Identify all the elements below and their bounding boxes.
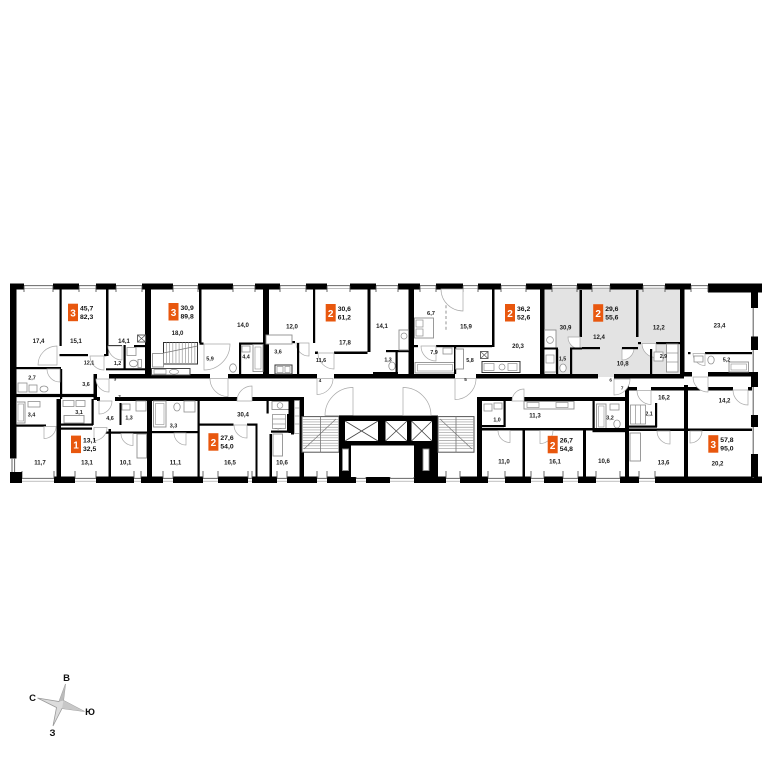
svg-text:Ю: Ю: [85, 707, 95, 718]
svg-text:45,7: 45,7: [80, 306, 93, 313]
svg-text:2: 2: [595, 309, 601, 320]
svg-text:5,8: 5,8: [466, 358, 474, 364]
svg-text:16,5: 16,5: [224, 460, 236, 467]
svg-text:23,4: 23,4: [714, 323, 726, 330]
svg-text:1,5: 1,5: [559, 357, 566, 363]
svg-text:В: В: [63, 673, 70, 684]
svg-text:52,6: 52,6: [517, 314, 530, 321]
svg-text:54,0: 54,0: [220, 444, 233, 451]
svg-text:7,9: 7,9: [430, 350, 438, 356]
svg-text:15,1: 15,1: [70, 338, 82, 345]
svg-text:30,6: 30,6: [338, 306, 351, 313]
svg-text:30,9: 30,9: [181, 305, 194, 312]
svg-text:16,1: 16,1: [549, 459, 561, 466]
svg-text:2: 2: [328, 309, 334, 320]
svg-text:С: С: [29, 693, 36, 704]
svg-text:13,6: 13,6: [658, 460, 670, 467]
svg-text:3,2: 3,2: [606, 416, 614, 422]
svg-text:18,0: 18,0: [172, 330, 184, 337]
svg-text:1,2: 1,2: [114, 361, 121, 367]
svg-text:4: 4: [319, 378, 322, 383]
svg-text:14,1: 14,1: [118, 338, 130, 345]
svg-text:54,8: 54,8: [560, 446, 573, 453]
svg-text:82,3: 82,3: [80, 314, 93, 321]
svg-text:3,3: 3,3: [170, 424, 178, 430]
svg-text:29,6: 29,6: [605, 306, 618, 313]
svg-text:3: 3: [114, 377, 117, 382]
svg-text:2: 2: [550, 441, 556, 452]
svg-text:1: 1: [73, 441, 79, 452]
svg-text:16,2: 16,2: [658, 395, 670, 402]
svg-text:3: 3: [70, 309, 76, 320]
svg-text:89,8: 89,8: [181, 313, 194, 320]
svg-text:14,2: 14,2: [719, 398, 731, 405]
svg-text:1,3: 1,3: [125, 416, 132, 422]
svg-text:1,0: 1,0: [493, 418, 500, 424]
svg-text:11,6: 11,6: [316, 358, 326, 364]
svg-text:11,1: 11,1: [170, 460, 182, 467]
svg-text:57,8: 57,8: [720, 437, 733, 444]
svg-text:14,1: 14,1: [376, 323, 388, 330]
svg-text:2,7: 2,7: [28, 376, 36, 382]
svg-text:10,8: 10,8: [617, 361, 629, 368]
svg-text:20,3: 20,3: [512, 343, 524, 350]
svg-text:7: 7: [621, 386, 624, 391]
svg-text:13,1: 13,1: [81, 460, 93, 467]
svg-text:2: 2: [118, 394, 121, 399]
svg-text:10,6: 10,6: [598, 458, 610, 465]
svg-text:2: 2: [211, 438, 217, 449]
svg-text:12,2: 12,2: [653, 325, 665, 332]
svg-text:61,2: 61,2: [338, 314, 351, 321]
svg-text:95,0: 95,0: [720, 446, 733, 453]
svg-text:15,9: 15,9: [460, 324, 472, 331]
svg-text:6: 6: [609, 378, 612, 383]
svg-text:30,9: 30,9: [560, 325, 572, 332]
svg-text:26,7: 26,7: [560, 438, 573, 445]
svg-text:3,6: 3,6: [82, 382, 90, 388]
svg-text:11,3: 11,3: [529, 413, 541, 420]
svg-text:5,9: 5,9: [206, 357, 214, 363]
svg-text:12,0: 12,0: [286, 324, 298, 331]
svg-text:4,6: 4,6: [106, 416, 114, 422]
svg-text:З: З: [50, 728, 56, 739]
svg-text:17,4: 17,4: [33, 338, 45, 345]
svg-text:5: 5: [464, 377, 467, 382]
svg-text:2,9: 2,9: [660, 354, 667, 360]
svg-text:12,1: 12,1: [84, 361, 95, 367]
svg-text:30,4: 30,4: [237, 412, 249, 419]
svg-text:3,6: 3,6: [274, 350, 282, 356]
svg-text:10,1: 10,1: [120, 460, 132, 467]
svg-text:3,4: 3,4: [28, 413, 36, 419]
svg-text:10,6: 10,6: [276, 460, 288, 467]
svg-text:6,7: 6,7: [427, 311, 435, 317]
svg-text:3: 3: [711, 440, 717, 451]
svg-text:32,5: 32,5: [83, 446, 96, 453]
svg-text:13,1: 13,1: [83, 438, 96, 445]
svg-text:17,8: 17,8: [339, 340, 351, 347]
svg-text:4,4: 4,4: [242, 355, 250, 361]
svg-text:3: 3: [171, 308, 177, 319]
svg-text:36,2: 36,2: [517, 306, 530, 313]
svg-text:11,7: 11,7: [34, 460, 46, 467]
svg-text:12,4: 12,4: [593, 334, 605, 341]
svg-text:55,6: 55,6: [605, 315, 618, 322]
svg-text:20,2: 20,2: [712, 461, 724, 468]
svg-text:11,0: 11,0: [498, 459, 510, 466]
svg-text:14,0: 14,0: [237, 322, 249, 329]
svg-text:2,1: 2,1: [645, 412, 652, 418]
svg-text:27,6: 27,6: [220, 435, 233, 442]
svg-text:2: 2: [507, 309, 513, 320]
